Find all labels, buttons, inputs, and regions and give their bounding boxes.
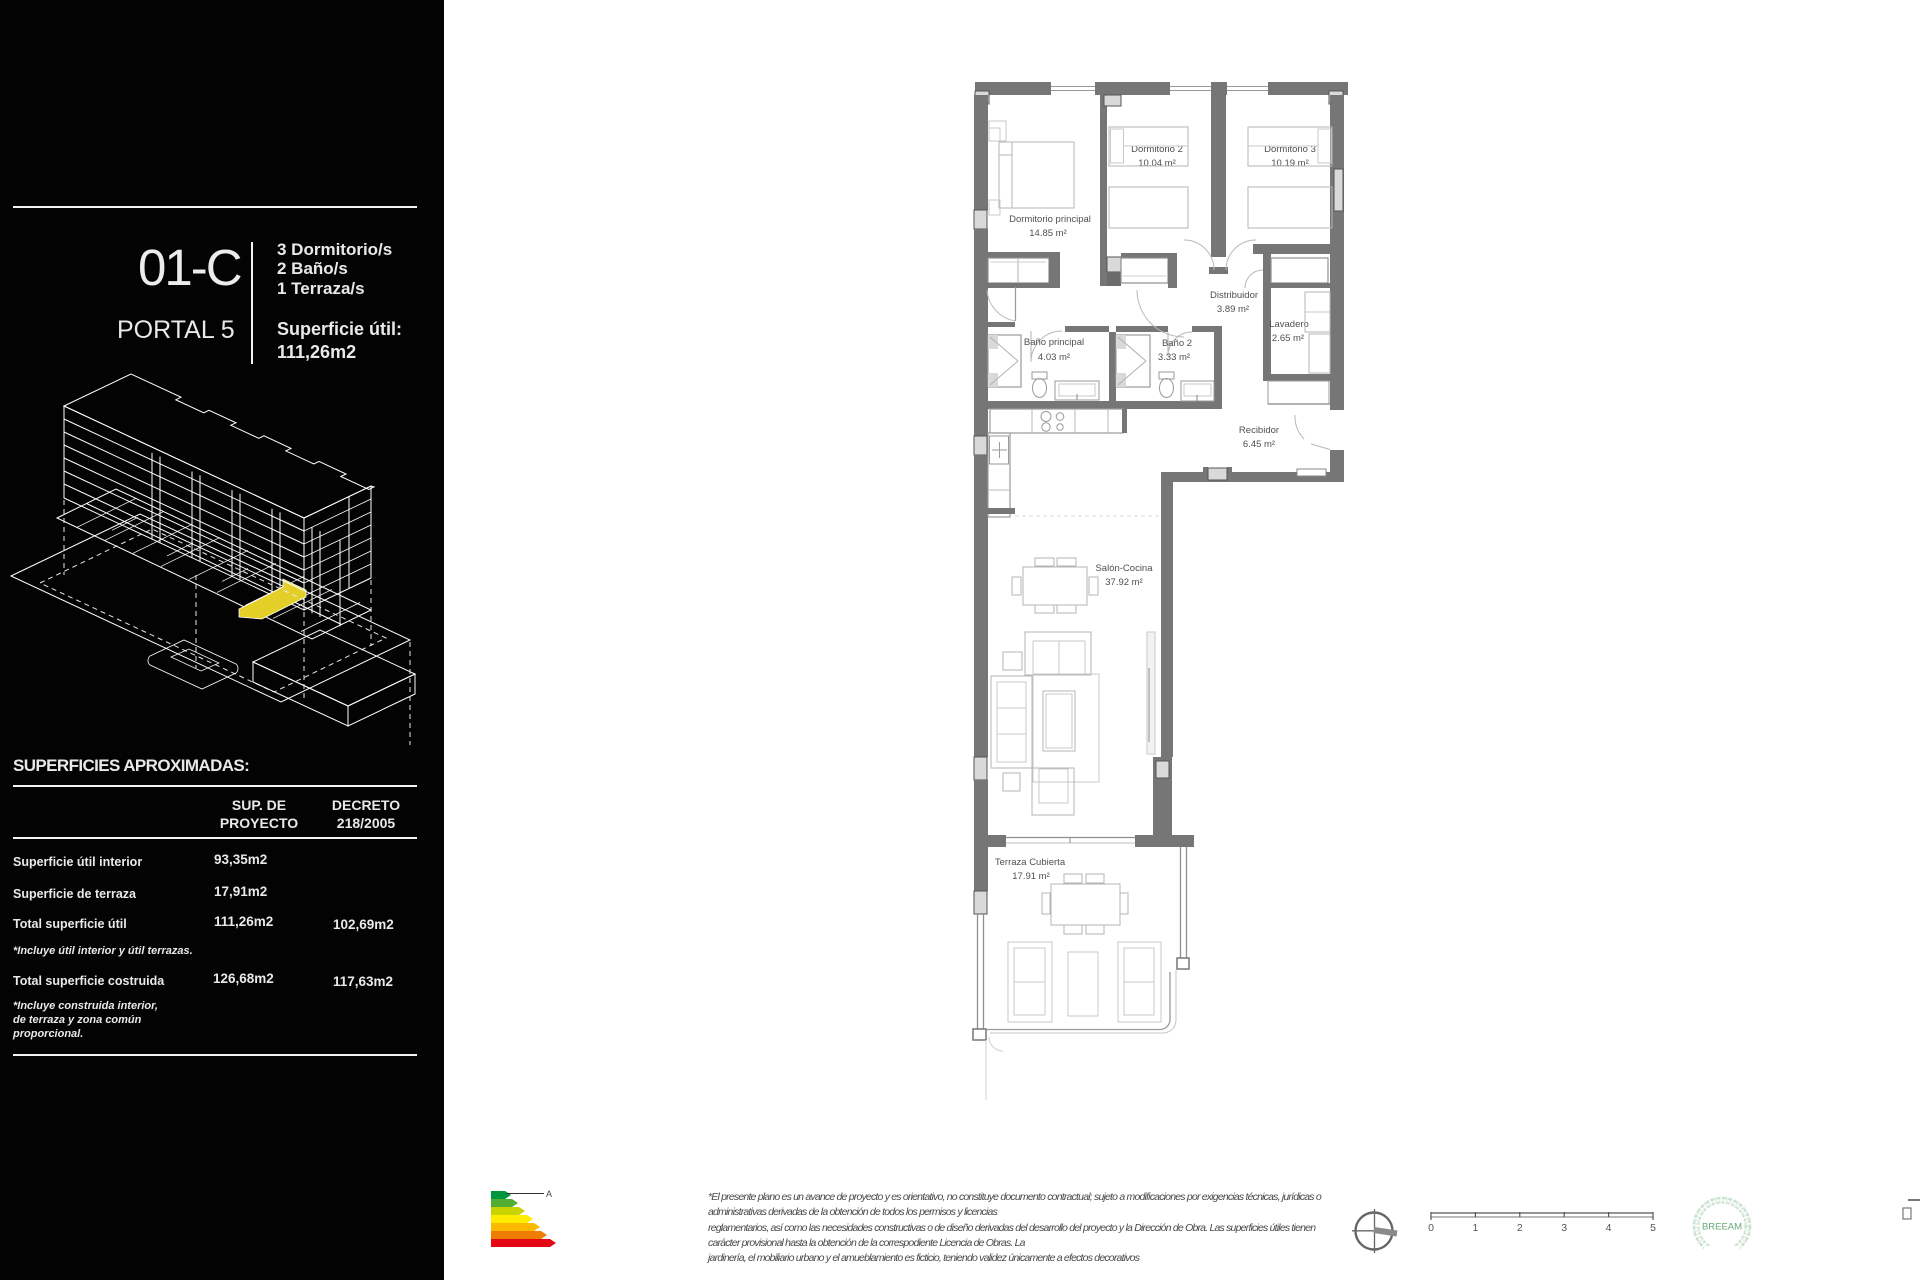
svg-text:14.85 m²: 14.85 m² [1029, 228, 1067, 239]
svg-text:Lavadero: Lavadero [1269, 319, 1309, 330]
svg-text:Distribuidor: Distribuidor [1210, 290, 1258, 301]
svg-text:5: 5 [1650, 1222, 1656, 1234]
svg-text:2.65 m²: 2.65 m² [1272, 333, 1304, 344]
svg-text:37.92 m²: 37.92 m² [1105, 577, 1143, 588]
svg-text:4: 4 [1606, 1222, 1612, 1234]
svg-text:Dormitorio principal: Dormitorio principal [1009, 214, 1091, 225]
svg-text:1: 1 [1472, 1222, 1478, 1234]
svg-text:2: 2 [1517, 1222, 1523, 1234]
svg-text:0: 0 [1428, 1222, 1434, 1234]
svg-text:Terraza Cubierta: Terraza Cubierta [995, 857, 1066, 868]
svg-text:10.19 m²: 10.19 m² [1271, 158, 1309, 169]
svg-text:3.33 m²: 3.33 m² [1158, 352, 1190, 363]
svg-text:BREEAM: BREEAM [1702, 1222, 1742, 1233]
svg-text:Baño principal: Baño principal [1024, 337, 1084, 348]
svg-text:4.03 m²: 4.03 m² [1038, 352, 1070, 363]
svg-text:3.89 m²: 3.89 m² [1217, 304, 1249, 315]
svg-text:Recibidor: Recibidor [1239, 425, 1279, 436]
svg-text:3: 3 [1561, 1222, 1567, 1234]
svg-text:A: A [546, 1189, 552, 1199]
svg-text:Baño 2: Baño 2 [1162, 338, 1192, 349]
svg-text:10.04 m²: 10.04 m² [1138, 158, 1176, 169]
svg-text:6.45 m²: 6.45 m² [1243, 439, 1275, 450]
svg-text:17.91 m²: 17.91 m² [1012, 871, 1050, 882]
svg-text:Salón-Cocina: Salón-Cocina [1095, 563, 1153, 574]
